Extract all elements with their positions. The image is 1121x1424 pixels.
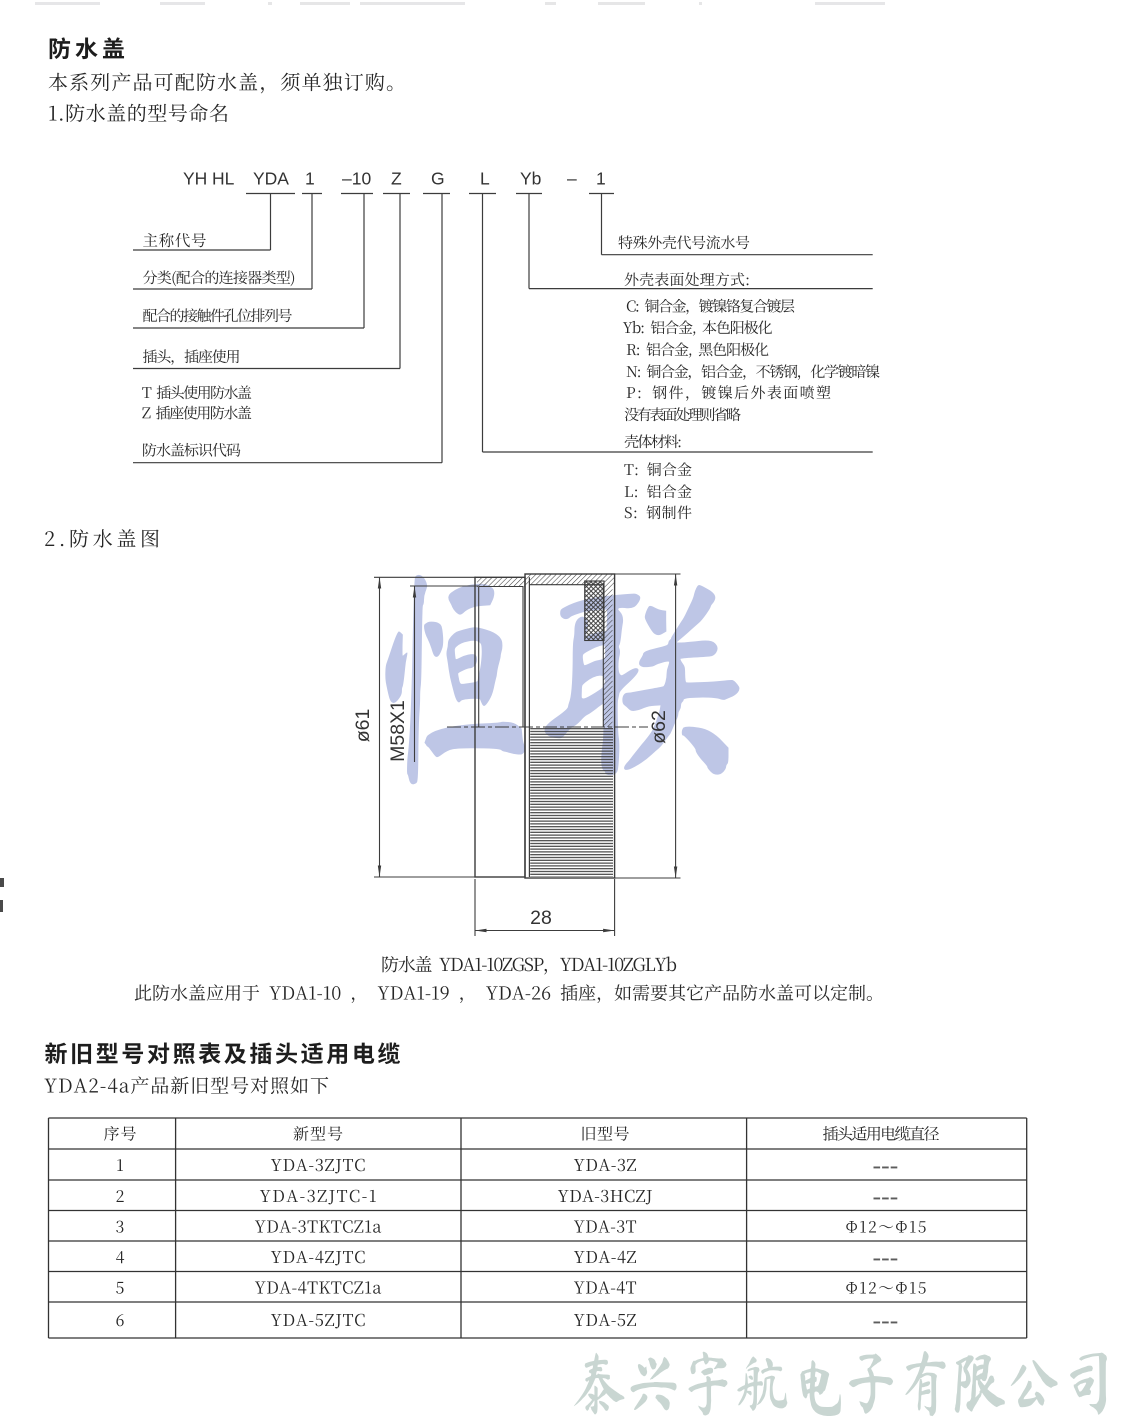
svg-text:ø61: ø61 <box>352 709 374 743</box>
svg-text:M58X1: M58X1 <box>387 700 409 762</box>
svg-text:28: 28 <box>530 907 552 929</box>
svg-text:ø62: ø62 <box>648 710 670 744</box>
